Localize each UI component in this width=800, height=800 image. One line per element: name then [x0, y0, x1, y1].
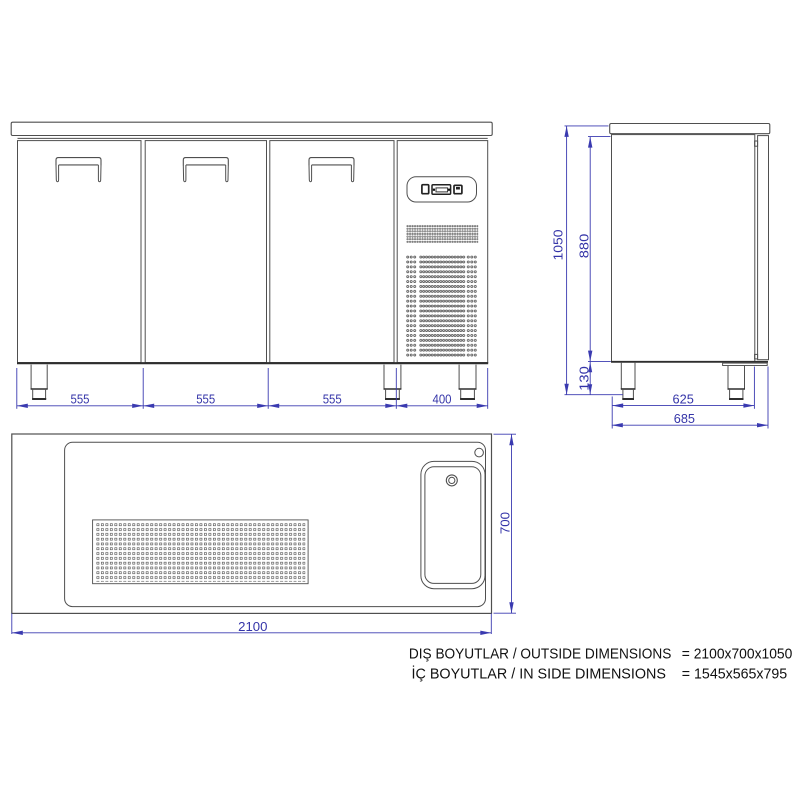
- svg-text:1050: 1050: [551, 230, 566, 261]
- svg-text:555: 555: [323, 392, 342, 407]
- svg-text:625: 625: [673, 391, 694, 406]
- svg-text:400: 400: [433, 392, 452, 407]
- svg-text:685: 685: [674, 411, 695, 426]
- svg-text:880: 880: [576, 234, 591, 259]
- svg-text:2100: 2100: [238, 619, 267, 634]
- svg-text:İÇ BOYUTLAR / IN SIDE DIMENSIO: İÇ BOYUTLAR / IN SIDE DIMENSIONS: [412, 664, 667, 682]
- svg-text:555: 555: [196, 392, 215, 407]
- svg-text:= 1545x565x795: = 1545x565x795: [682, 666, 787, 682]
- svg-text:555: 555: [71, 392, 90, 407]
- svg-text:= 2100x700x1050: = 2100x700x1050: [682, 647, 793, 663]
- svg-text:130: 130: [576, 366, 591, 391]
- svg-text:DIŞ BOYUTLAR / OUTSIDE DIMENSI: DIŞ BOYUTLAR / OUTSIDE DIMENSIONS: [409, 647, 672, 663]
- svg-text:700: 700: [497, 512, 512, 534]
